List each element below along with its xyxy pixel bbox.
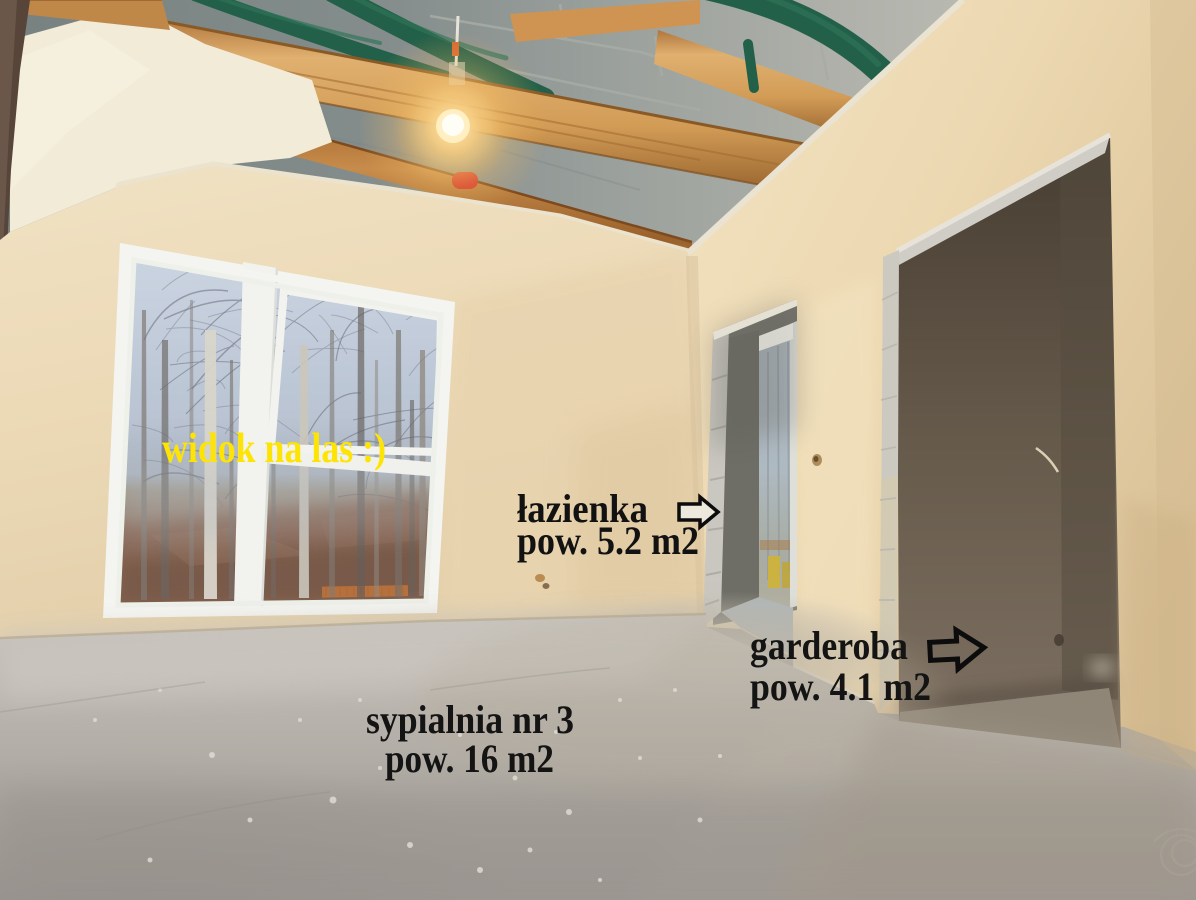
svg-text:pow. 4.1 m2: pow. 4.1 m2 bbox=[750, 664, 931, 709]
svg-text:pow. 16 m2: pow. 16 m2 bbox=[385, 736, 554, 781]
svg-text:widok na las :): widok na las :) bbox=[162, 426, 386, 472]
svg-text:garderoba: garderoba bbox=[750, 623, 908, 668]
svg-text:pow. 5.2 m2: pow. 5.2 m2 bbox=[517, 518, 699, 563]
